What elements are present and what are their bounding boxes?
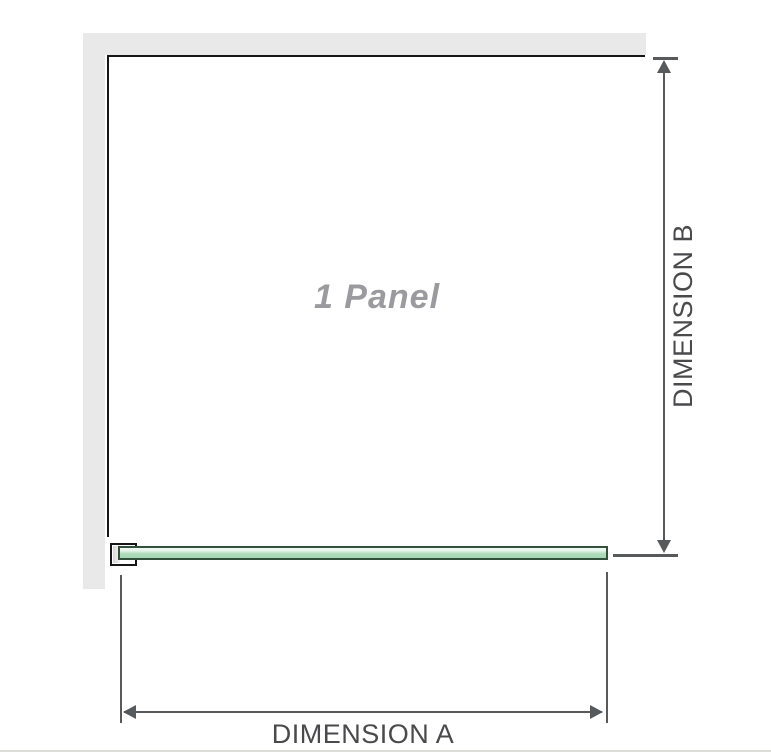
extension-line-right [606,572,608,723]
extension-line-left [120,575,122,723]
dimension-b-arrow-up-icon [657,60,671,73]
dimension-a-line [124,711,602,713]
dimension-b-arrow-down-icon [657,540,671,553]
dimension-a-arrow-right-icon [590,705,603,719]
dimension-a-arrow-left-icon [123,705,136,719]
bottom-baseline [0,750,771,752]
glass-panel-bar [118,546,608,560]
dimension-b-bottom-tick [613,554,678,557]
dimension-b-line [663,62,665,543]
dimension-a-label: DIMENSION A [124,719,602,750]
wall-left-strip [83,33,105,589]
panel-dimension-diagram: 1 Panel DIMENSION B DIMENSION A [0,0,771,755]
wall-top-strip [83,33,646,55]
panel-count-label: 1 Panel [109,57,645,537]
dimension-b-label: DIMENSION B [670,216,696,416]
